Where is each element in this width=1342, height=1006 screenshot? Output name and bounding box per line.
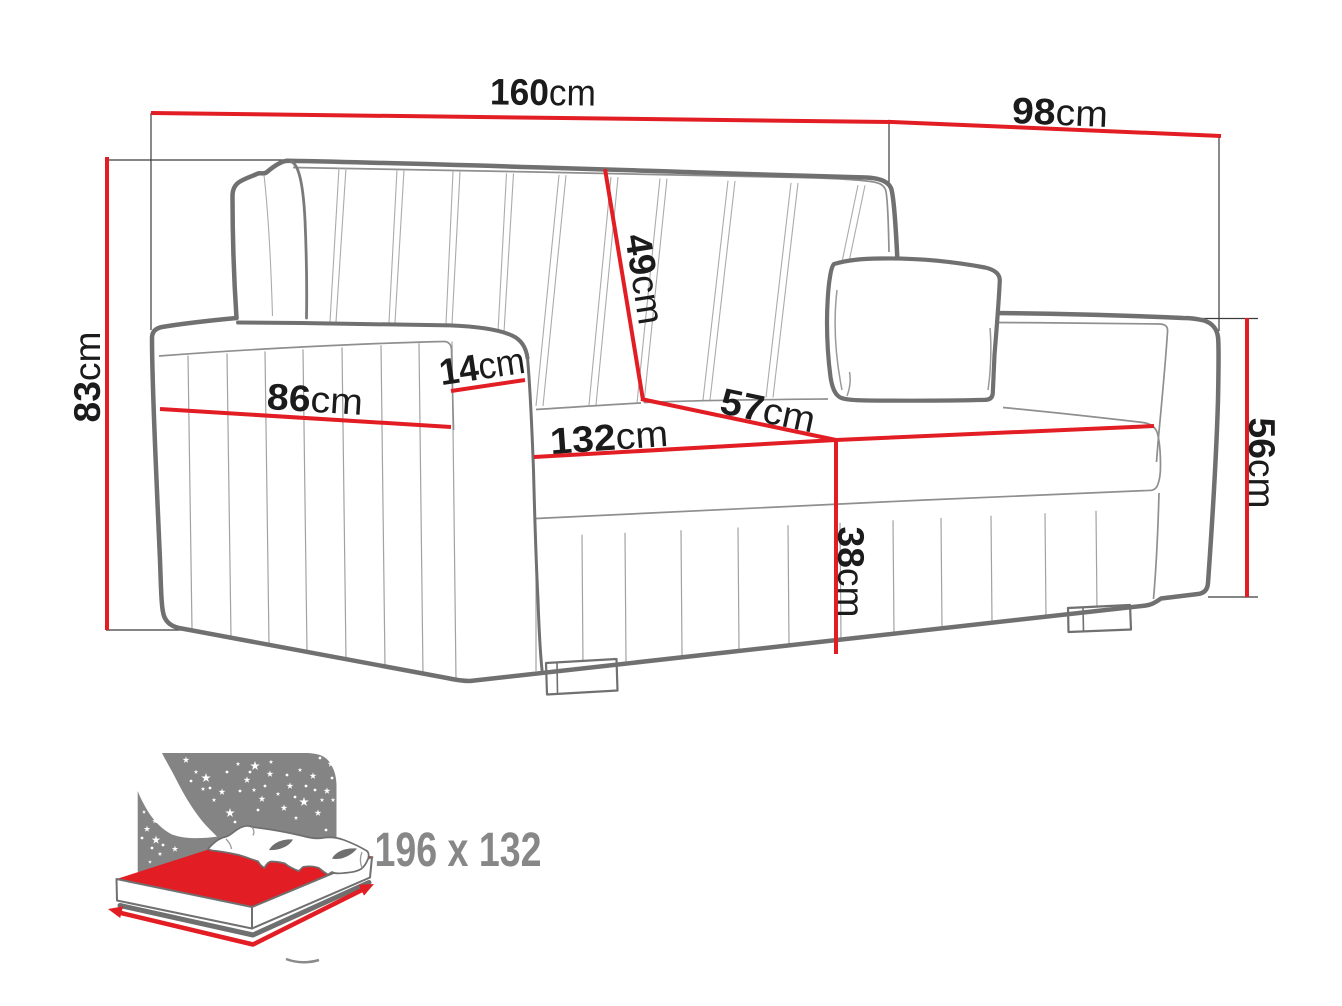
- svg-text:132cm: 132cm: [549, 413, 670, 462]
- svg-text:14cm: 14cm: [437, 340, 528, 393]
- svg-text:56cm: 56cm: [1241, 418, 1282, 509]
- svg-text:86cm: 86cm: [266, 376, 364, 423]
- svg-text:57cm: 57cm: [717, 380, 819, 440]
- svg-text:160cm: 160cm: [490, 71, 596, 113]
- svg-text:83cm: 83cm: [67, 332, 108, 423]
- svg-text:98cm: 98cm: [1011, 90, 1109, 135]
- svg-text:196 x 132: 196 x 132: [375, 824, 542, 877]
- svg-text:49cm: 49cm: [617, 231, 672, 327]
- svg-text:38cm: 38cm: [830, 527, 871, 618]
